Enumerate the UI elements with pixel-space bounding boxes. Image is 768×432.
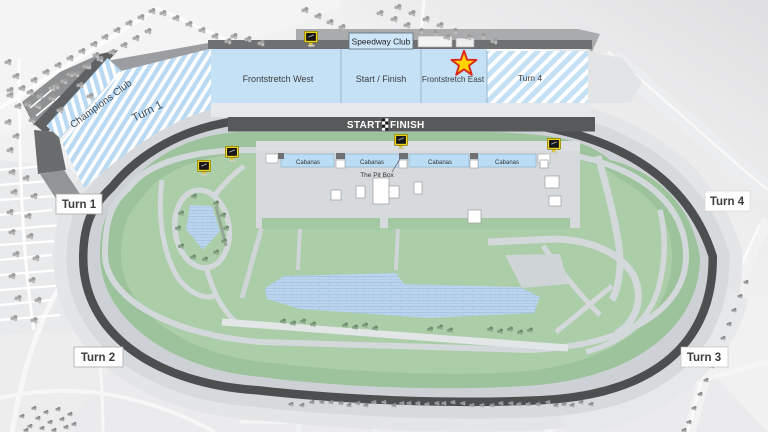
svg-text:Frontstretch East: Frontstretch East <box>422 75 485 84</box>
svg-text:Cabanas: Cabanas <box>495 160 519 166</box>
svg-text:START: START <box>347 120 381 131</box>
svg-text:Turn 4: Turn 4 <box>710 196 745 208</box>
svg-text:Cabanas: Cabanas <box>296 160 320 166</box>
svg-text:Turn 4: Turn 4 <box>518 73 543 83</box>
svg-text:Turn 2: Turn 2 <box>81 352 115 364</box>
svg-text:Cabanas: Cabanas <box>360 160 384 166</box>
svg-text:Turn 1: Turn 1 <box>62 199 97 211</box>
svg-text:Frontstretch West: Frontstretch West <box>243 74 314 84</box>
svg-text:Turn 3: Turn 3 <box>687 352 721 364</box>
svg-text:Speedway Club: Speedway Club <box>352 37 411 47</box>
svg-text:Cabanas: Cabanas <box>428 160 452 166</box>
svg-text:Start / Finish: Start / Finish <box>356 74 407 84</box>
svg-text:FINISH: FINISH <box>390 120 425 131</box>
